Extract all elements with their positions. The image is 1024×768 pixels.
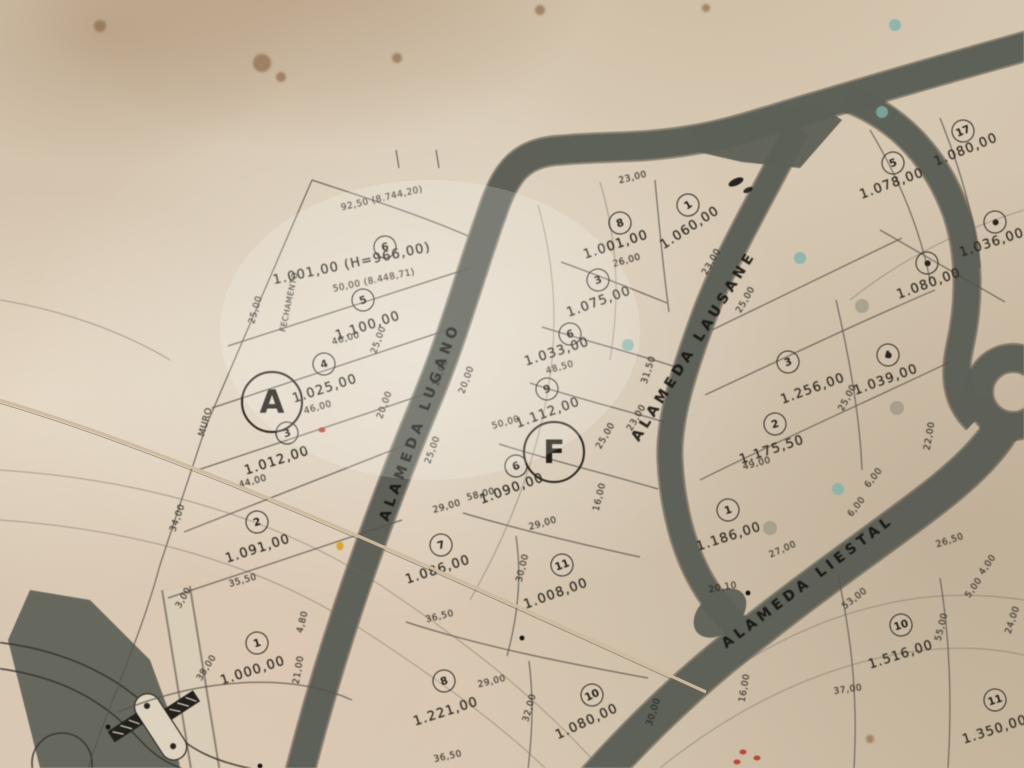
dimension-label: 30,00 [645, 697, 663, 727]
dimension-label: 29,00 [477, 674, 507, 691]
paint-dot-teal [832, 483, 844, 495]
map-annotation: MURO [197, 406, 215, 437]
dimension-label: 38,00 [195, 653, 219, 683]
lot-number-circle: 3 [773, 347, 802, 376]
dimension-label: 53,00 [841, 586, 870, 612]
lot-number-circle: 11 [547, 550, 576, 579]
dimension-label: 22,00 [923, 421, 938, 451]
lot-number-circle: 10 [887, 611, 916, 640]
stain-spot [866, 735, 874, 743]
dimension-label: 31,50 [640, 355, 658, 385]
lot-area-label: 1.080,00 [553, 701, 621, 743]
dimension-label: 20,00 [375, 390, 394, 420]
red-pen-mark [754, 756, 761, 761]
red-pen-mark [319, 428, 326, 433]
dimension-label: 23,00 [618, 170, 648, 187]
dimension-label: 29,00 [528, 515, 558, 533]
dimension-label: 23,00 [700, 247, 723, 277]
dimension-label: 30,00 [515, 553, 532, 583]
dimension-label: 5,00 [963, 576, 984, 600]
lot-area-label: 1.350,00 [961, 712, 1024, 747]
dimension-label: 20,10 [708, 581, 738, 596]
lot-number-circle: 4 [873, 340, 902, 369]
dimension-label: 35,50 [228, 572, 258, 590]
stain-spot [702, 4, 710, 12]
lot-area-label: 1.186,00 [695, 519, 764, 554]
dimension-label: 50,00 [491, 414, 521, 432]
dimension-label: 25,00 [594, 421, 617, 451]
dimension-label: 4,80 [295, 610, 310, 634]
dimension-label: 6,00 [846, 495, 868, 519]
map-photograph: AF61.001,00 (H=966,00)50,00 (8.448,71)51… [0, 0, 1024, 768]
lot-area-label: 1.256,00 [779, 370, 848, 407]
dimension-label: 29,00 [432, 498, 462, 516]
dimension-label: 32,00 [521, 693, 539, 723]
lot-number-circle: 2 [761, 410, 790, 439]
lot-area-label: 1.516,00 [867, 637, 936, 672]
dimension-label: 26,00 [612, 252, 642, 270]
orange-pen-dot [337, 542, 344, 551]
lot-area-label: 1.086,00 [404, 552, 473, 587]
lot-number-circle: 2 [243, 508, 272, 537]
red-pen-mark [740, 750, 747, 755]
map-labels-layer: AF61.001,00 (H=966,00)50,00 (8.448,71)51… [0, 0, 1024, 768]
stain-spot [392, 53, 402, 63]
stain-spot [276, 72, 286, 82]
red-pen-mark [734, 760, 741, 765]
street-name-label: ALAMEDA LAUSANE [628, 248, 759, 445]
dimension-label: 20,00 [457, 365, 476, 395]
paint-dot-gray [890, 401, 904, 415]
map-annotation: 92,50 (8.744,20) [340, 185, 424, 214]
dimension-label: 34,00 [168, 503, 187, 533]
stain-spot [535, 5, 545, 15]
dimension-label: 36,50 [425, 609, 455, 626]
lot-number-circle: 8 [430, 667, 459, 696]
dimension-label: 27,00 [768, 540, 798, 561]
lot-area-label: 1.039,00 [852, 361, 921, 398]
dimension-label: 44,00 [238, 473, 268, 491]
lot-area-label: 1.221,00 [412, 694, 481, 729]
dimension-label: 25,00 [247, 295, 265, 325]
paint-dot-gray [855, 299, 869, 313]
stain-spot [94, 20, 106, 32]
dimension-label: 16,00 [592, 482, 609, 512]
lot-number-circle: 1 [243, 629, 272, 658]
dimension-label: 16,00 [738, 673, 753, 703]
lot-area-label: 1.012,00 [243, 443, 312, 478]
lot-area-label: 1.091,00 [224, 531, 293, 566]
lot-number-circle: 4 [310, 350, 339, 379]
dimension-label: 25,00 [423, 435, 442, 465]
dimension-label: 24,00 [1004, 605, 1022, 635]
dimension-label: 21,00 [292, 655, 307, 685]
dimension-label: 4,00 [977, 553, 998, 577]
paint-dot-teal [622, 339, 634, 351]
paint-dot-teal [794, 252, 806, 264]
lot-area-label: 1.008,00 [522, 575, 591, 612]
paint-dot-gray [763, 521, 777, 535]
lot-number-circle: 11 [981, 686, 1010, 715]
dimension-label: 3,00 [174, 586, 194, 610]
lot-number-circle: 7 [427, 531, 456, 560]
dimension-label: 6,00 [863, 466, 885, 490]
lot-number-circle: 9 [532, 374, 561, 403]
street-name-label: ALAMEDA LUGANO [377, 321, 464, 524]
paint-dot-teal [889, 19, 901, 31]
dimension-label: 37,00 [833, 683, 863, 697]
stain-spot [253, 54, 271, 72]
dimension-label: 36,50 [433, 749, 463, 765]
paint-dot-teal [876, 106, 888, 118]
dimension-label: 26,50 [935, 532, 965, 550]
dimension-label: 55,00 [934, 612, 951, 642]
lot-number-circle: 1 [714, 496, 743, 525]
lot-area-label: 1.000,00 [219, 653, 288, 688]
